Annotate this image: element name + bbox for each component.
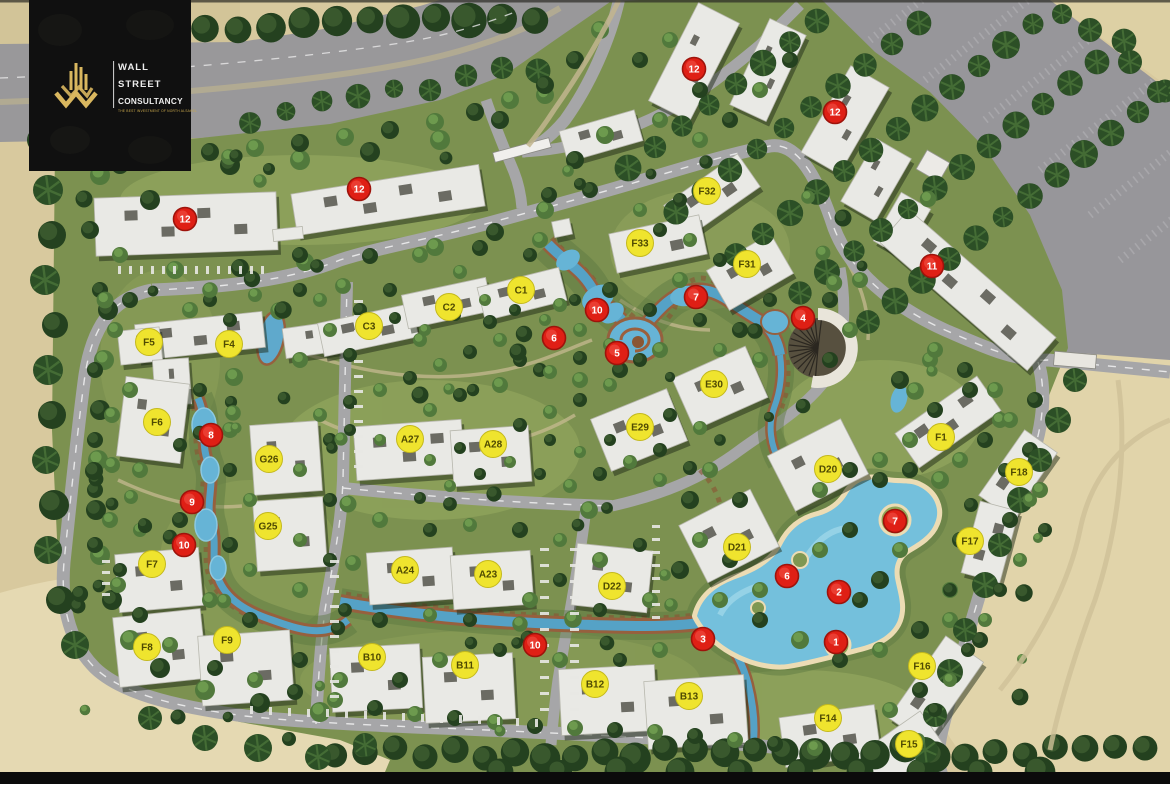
svg-text:C3: C3 <box>363 322 376 333</box>
svg-text:12: 12 <box>179 215 191 226</box>
svg-text:6: 6 <box>551 334 557 345</box>
svg-text:C1: C1 <box>515 286 528 297</box>
svg-text:B11: B11 <box>456 661 474 672</box>
svg-text:F7: F7 <box>146 560 158 571</box>
svg-text:B10: B10 <box>363 653 382 664</box>
svg-text:STREET: STREET <box>118 79 161 90</box>
svg-text:8: 8 <box>208 431 214 442</box>
svg-text:F6: F6 <box>151 418 163 429</box>
svg-text:A23: A23 <box>479 570 498 581</box>
svg-text:11: 11 <box>927 262 938 273</box>
svg-text:E30: E30 <box>705 380 723 391</box>
svg-text:12: 12 <box>688 65 700 76</box>
svg-text:B12: B12 <box>586 680 605 691</box>
svg-text:F15: F15 <box>900 740 918 751</box>
svg-text:F18: F18 <box>1010 468 1028 479</box>
svg-text:F31: F31 <box>738 260 756 271</box>
svg-text:3: 3 <box>700 635 706 646</box>
svg-text:F1: F1 <box>935 433 947 444</box>
svg-text:G25: G25 <box>259 522 278 533</box>
svg-text:1: 1 <box>833 638 839 649</box>
svg-text:F17: F17 <box>961 537 979 548</box>
svg-text:A28: A28 <box>484 440 503 451</box>
svg-text:7: 7 <box>693 293 699 304</box>
svg-text:F8: F8 <box>141 643 153 654</box>
svg-text:A24: A24 <box>396 566 415 577</box>
svg-text:CONSULTANCY: CONSULTANCY <box>118 97 183 106</box>
svg-text:F32: F32 <box>698 187 716 198</box>
svg-text:12: 12 <box>353 185 365 196</box>
svg-text:F14: F14 <box>819 714 837 725</box>
svg-text:F4: F4 <box>223 340 235 351</box>
svg-text:5: 5 <box>614 349 620 360</box>
svg-text:7: 7 <box>892 517 898 528</box>
svg-text:F16: F16 <box>913 662 931 673</box>
svg-text:C2: C2 <box>443 303 456 314</box>
svg-text:10: 10 <box>178 541 190 552</box>
svg-text:THE BEST INVESTMENT OF NORTH A: THE BEST INVESTMENT OF NORTH ALSAHEL <box>118 109 197 113</box>
svg-text:F9: F9 <box>221 636 233 647</box>
svg-text:D21: D21 <box>728 543 747 554</box>
svg-text:F5: F5 <box>143 338 155 349</box>
svg-text:B13: B13 <box>680 692 699 703</box>
svg-text:2: 2 <box>836 588 842 599</box>
svg-text:10: 10 <box>591 306 603 317</box>
svg-text:9: 9 <box>189 498 195 509</box>
svg-text:F33: F33 <box>631 239 649 250</box>
svg-text:10: 10 <box>529 641 541 652</box>
svg-text:D20: D20 <box>819 465 838 476</box>
svg-text:E29: E29 <box>631 423 649 434</box>
svg-text:6: 6 <box>784 572 790 583</box>
svg-text:A27: A27 <box>401 435 420 446</box>
svg-text:4: 4 <box>800 314 806 325</box>
svg-text:WALL: WALL <box>118 62 149 73</box>
svg-text:12: 12 <box>829 108 841 119</box>
svg-text:G26: G26 <box>260 455 279 466</box>
svg-text:D22: D22 <box>603 582 622 593</box>
